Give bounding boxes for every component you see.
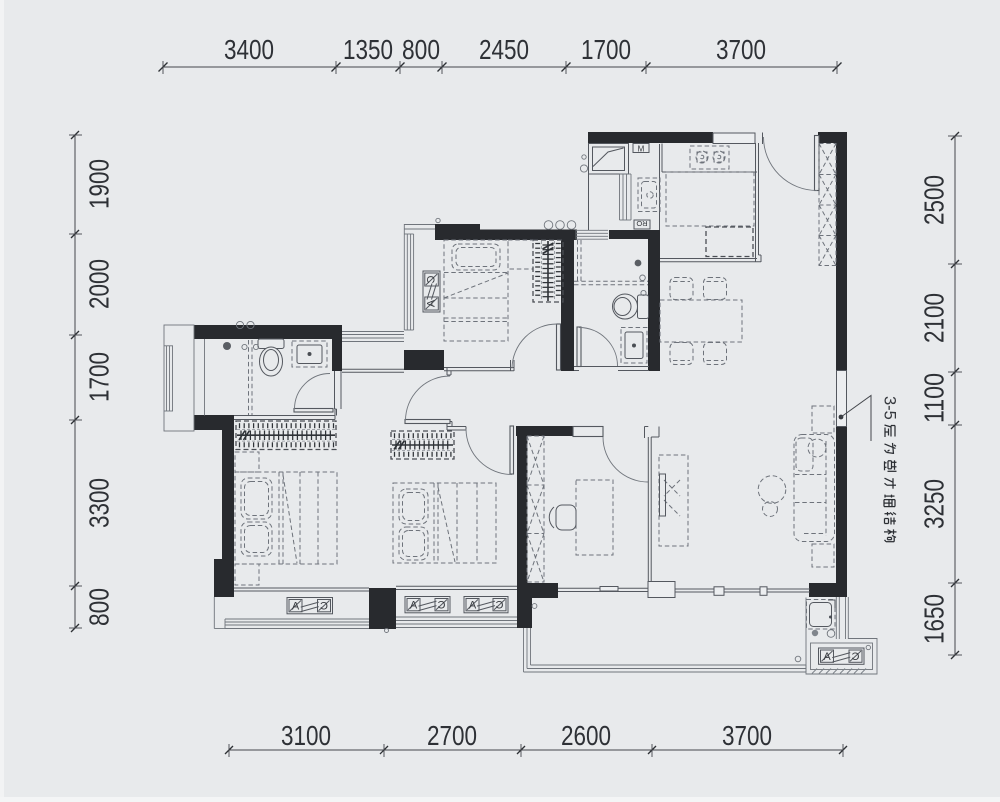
svg-text:2100: 2100 (918, 293, 949, 343)
svg-text:A: A (823, 651, 831, 663)
svg-text:1100: 1100 (918, 373, 949, 423)
svg-text:A: A (410, 600, 418, 612)
svg-text:C: C (437, 600, 445, 612)
svg-text:3-5: 3-5 (881, 396, 899, 420)
svg-text:2450: 2450 (479, 34, 529, 65)
svg-text:2600: 2600 (561, 720, 611, 751)
svg-text:C: C (495, 600, 503, 612)
svg-text:M: M (638, 145, 645, 154)
svg-text:A: A (469, 600, 477, 612)
svg-text:3100: 3100 (281, 720, 331, 751)
svg-text:3300: 3300 (83, 478, 114, 528)
svg-text:800: 800 (402, 34, 440, 65)
svg-text:800: 800 (83, 588, 114, 626)
svg-text:3700: 3700 (722, 720, 772, 751)
svg-text:1350: 1350 (343, 34, 393, 65)
svg-text:2500: 2500 (918, 175, 949, 225)
svg-text:A: A (426, 299, 438, 307)
svg-text:3400: 3400 (224, 34, 274, 65)
svg-text:2000: 2000 (83, 259, 114, 309)
svg-text:C: C (851, 651, 859, 663)
svg-text:RO: RO (636, 219, 647, 228)
svg-text:A: A (292, 601, 300, 613)
svg-text:C: C (426, 276, 438, 284)
svg-text:3250: 3250 (918, 479, 949, 529)
svg-text:2700: 2700 (427, 720, 477, 751)
svg-text:1700: 1700 (83, 352, 114, 402)
svg-text:1650: 1650 (918, 594, 949, 644)
svg-text:1700: 1700 (581, 34, 631, 65)
svg-text:1900: 1900 (83, 159, 114, 209)
svg-text:C: C (320, 601, 328, 613)
svg-text:3700: 3700 (716, 34, 766, 65)
